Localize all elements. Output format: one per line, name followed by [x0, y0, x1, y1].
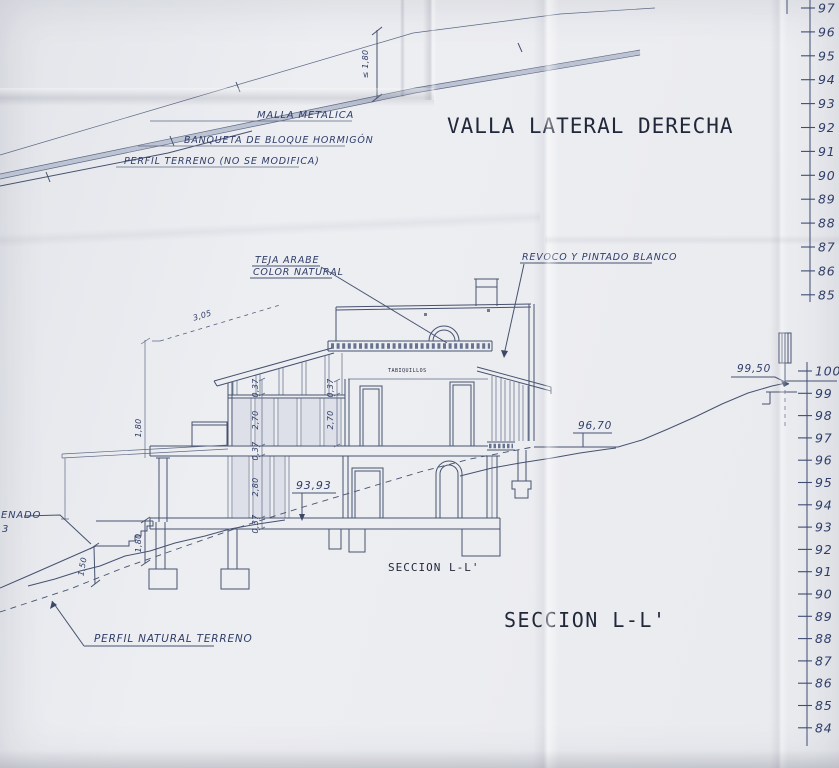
- fence-height-dimension: ≤ 1,80: [361, 27, 382, 102]
- banqueta-label: BANQUETA DE BLOQUE HORMIGÓN: [184, 134, 374, 146]
- scale-value: 95: [818, 48, 836, 63]
- scale-value: 94: [815, 497, 833, 512]
- scale-value: 88: [818, 216, 836, 231]
- scale-value: 90: [818, 168, 836, 183]
- malla-metalica-label: MALLA METALICA: [257, 110, 354, 121]
- scale-value: 85: [815, 698, 833, 713]
- elev-93-93: 93,93: [296, 479, 332, 492]
- left-sloped-roof: [214, 348, 334, 386]
- scale-value: 93: [815, 520, 833, 535]
- porch-column: [156, 458, 170, 522]
- footings-left: [149, 522, 249, 589]
- perfil-natural-label: PERFIL NATURAL TERRENO: [94, 633, 253, 645]
- svg-text:≤ 1,80: ≤ 1,80: [361, 50, 370, 79]
- teja-arabe-label: TEJA ARABE: [255, 255, 319, 266]
- scale-value: 85: [818, 287, 836, 302]
- scale-value: 86: [818, 263, 836, 278]
- material-callouts: TEJA ARABE COLOR NATURAL REVOCO Y PINTAD…: [1, 252, 677, 646]
- scale-value: 96: [818, 24, 836, 39]
- scale-value: 97: [815, 430, 833, 445]
- scale-value: 91: [818, 144, 836, 159]
- scale-value: 90: [815, 587, 833, 602]
- upper-slab: [150, 446, 500, 456]
- svg-text:2,70: 2,70: [251, 410, 260, 429]
- elev-96-70: 96,70: [578, 420, 612, 432]
- upper-window-1: [360, 386, 382, 446]
- svg-text:2,80: 2,80: [251, 477, 260, 496]
- dim-roof-slope: 3,05: [192, 309, 213, 323]
- scale-value: 99: [815, 386, 833, 401]
- terrace-parapet: [192, 422, 227, 446]
- wall-siding: [492, 376, 528, 441]
- section-title: SECCION L-L': [504, 608, 667, 632]
- svg-text:2,70: 2,70: [326, 410, 335, 429]
- scale-value: 96: [815, 453, 833, 468]
- fence-title: VALLA LATERAL DERECHA: [447, 114, 734, 138]
- svg-text:0,37: 0,37: [251, 514, 260, 534]
- scale-value: 88: [815, 631, 833, 646]
- scale-value: 87: [818, 240, 836, 255]
- section-caption: SECCION L-L': [388, 561, 479, 574]
- scale-value: 97: [818, 1, 836, 16]
- scale-value: 89: [818, 192, 836, 207]
- edge-note-line2: 3: [2, 524, 9, 535]
- scale-value: 89: [815, 609, 833, 624]
- footings-right: [329, 529, 500, 556]
- annex-footing: [512, 450, 531, 498]
- scale-value: 87: [815, 653, 833, 668]
- dim-1-80-steps: 1,80: [134, 533, 143, 552]
- upper-window-2: [450, 382, 474, 446]
- dim-left-height: 1,80: [134, 418, 143, 437]
- ground-door: [352, 468, 383, 518]
- entrance-steps: [96, 521, 153, 546]
- scanned-blueprint-photo: MALLA METALICA BANQUETA DE BLOQUE HORMIG…: [0, 0, 839, 768]
- arched-door: [436, 461, 462, 518]
- dim-1-50: 1,50: [76, 556, 88, 576]
- scale-value: 95: [815, 475, 833, 490]
- elev-99-50: 99,50: [737, 363, 771, 375]
- scale-value: 100: [815, 364, 839, 379]
- fence-elevation-drawing: MALLA METALICA BANQUETA DE BLOQUE HORMIG…: [0, 8, 655, 186]
- top-elevation-scale: 97969594939291908988878685: [787, 0, 836, 302]
- terrain-lines: [0, 383, 786, 612]
- roof-tile-band: [328, 341, 492, 351]
- perfil-terreno-label: PERFIL TERRENO (NO SE MODIFICA): [124, 156, 320, 167]
- scale-value: 93: [818, 96, 836, 111]
- scale-value: 91: [815, 564, 833, 579]
- scale-value: 98: [815, 408, 833, 423]
- scale-value: 84: [815, 720, 833, 735]
- scale-value: 94: [818, 72, 836, 87]
- chimney: [474, 279, 499, 306]
- svg-text:0,37: 0,37: [326, 378, 335, 398]
- bottom-elevation-scale: 10099989796959493929190898887868584: [798, 362, 839, 746]
- scale-value: 92: [818, 120, 836, 135]
- section-drawing-svg: MALLA METALICA BANQUETA DE BLOQUE HORMIG…: [0, 0, 839, 768]
- scale-value: 92: [815, 542, 833, 557]
- tabiquillos-label: TABIQUILLOS: [388, 368, 427, 374]
- svg-text:0,37: 0,37: [251, 378, 260, 398]
- right-ground-line: [534, 383, 786, 447]
- house-section-drawing: TABIQUILLOS: [0, 279, 551, 589]
- scale-value: 86: [815, 676, 833, 691]
- revoco-label: REVOCO Y PINTADO BLANCO: [522, 252, 677, 263]
- ground-slab: [150, 518, 500, 529]
- svg-text:0,37: 0,37: [251, 441, 260, 461]
